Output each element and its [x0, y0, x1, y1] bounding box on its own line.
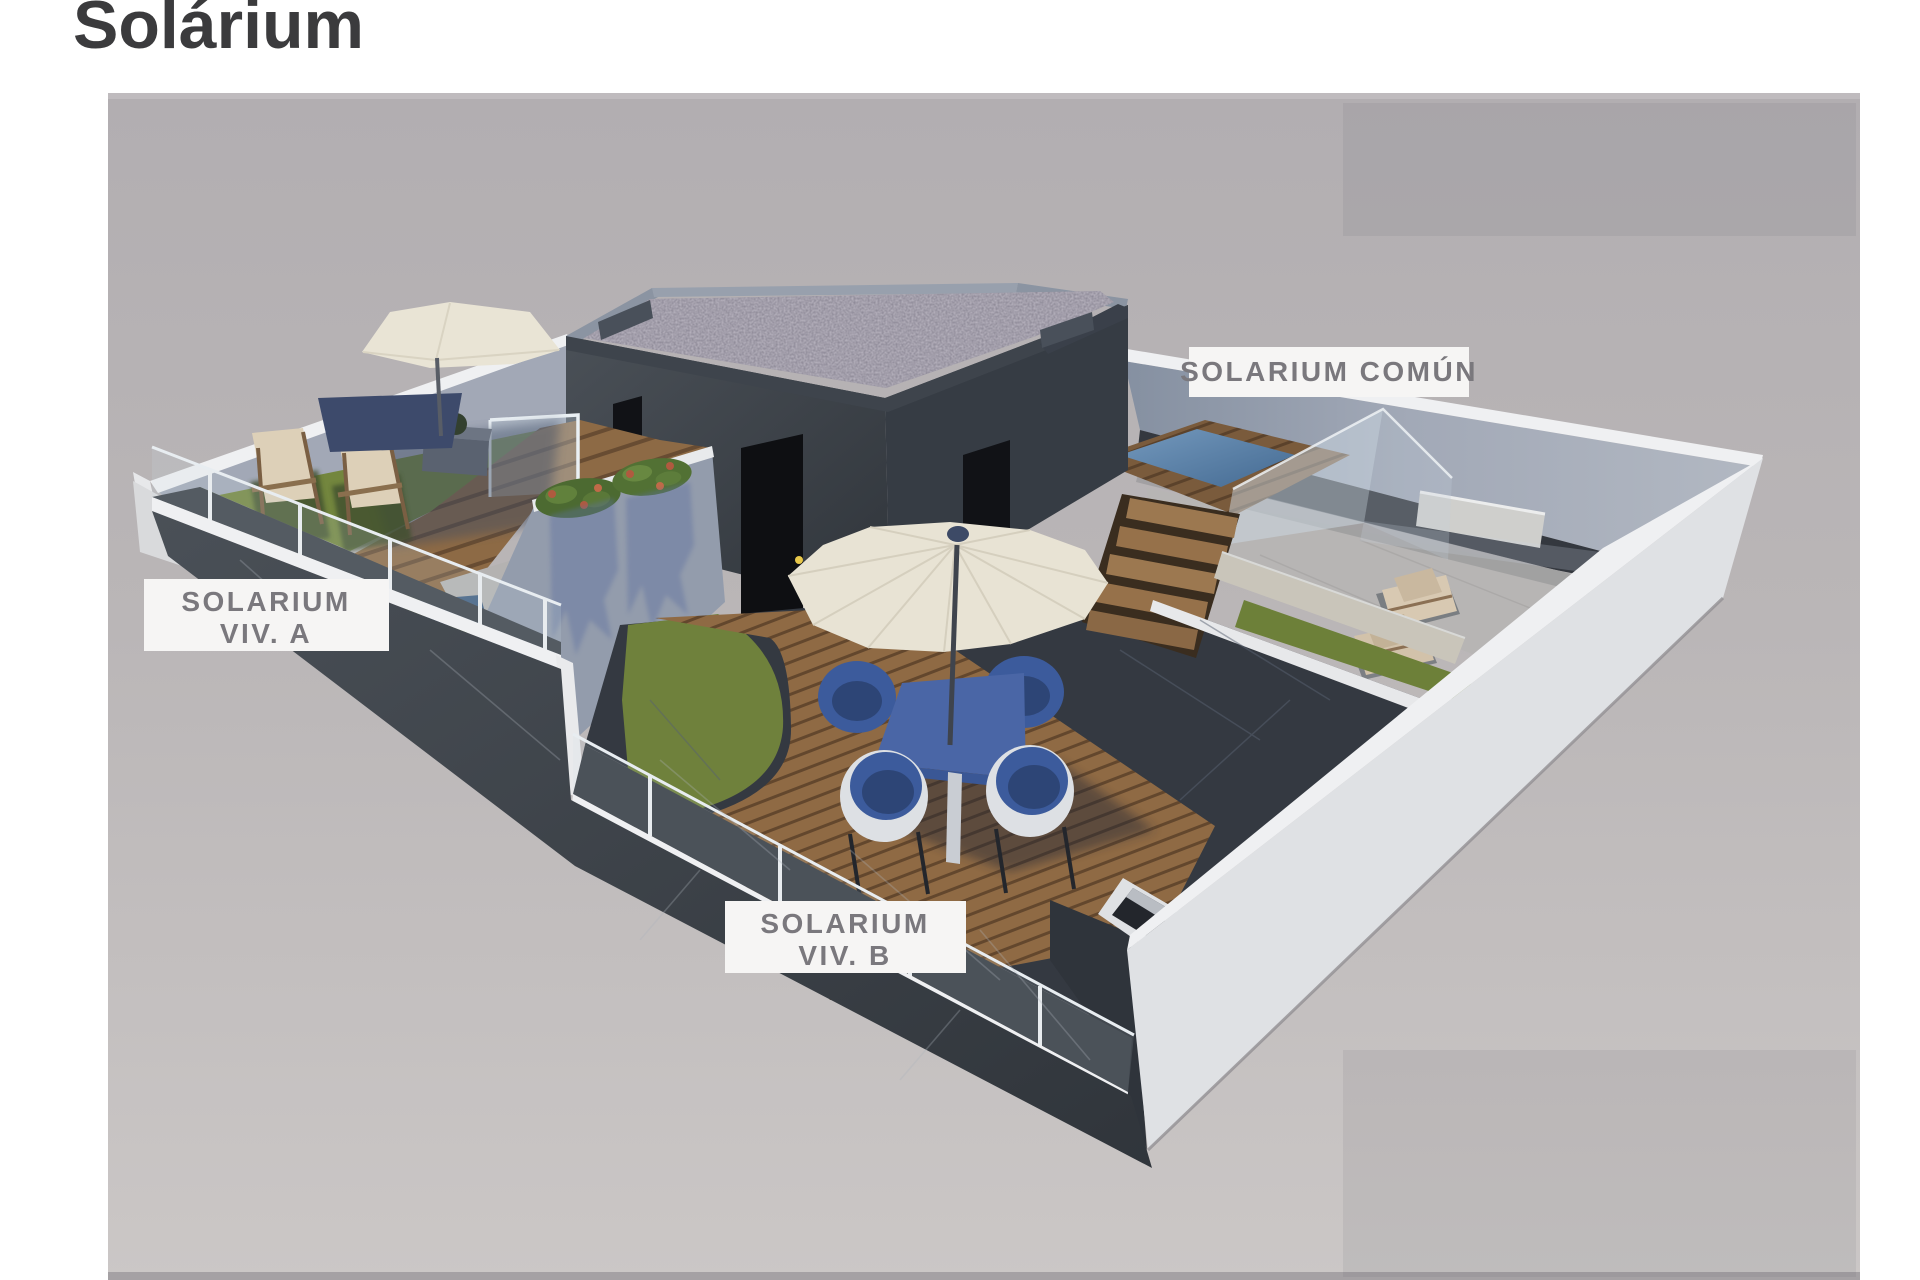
- svg-text:SOLARIUM: SOLARIUM: [181, 586, 350, 617]
- svg-text:SOLARIUM COMÚN: SOLARIUM COMÚN: [1180, 356, 1478, 387]
- svg-text:VIV. A: VIV. A: [220, 618, 312, 649]
- svg-text:SOLARIUM: SOLARIUM: [760, 908, 929, 939]
- svg-text:VIV. B: VIV. B: [798, 940, 891, 971]
